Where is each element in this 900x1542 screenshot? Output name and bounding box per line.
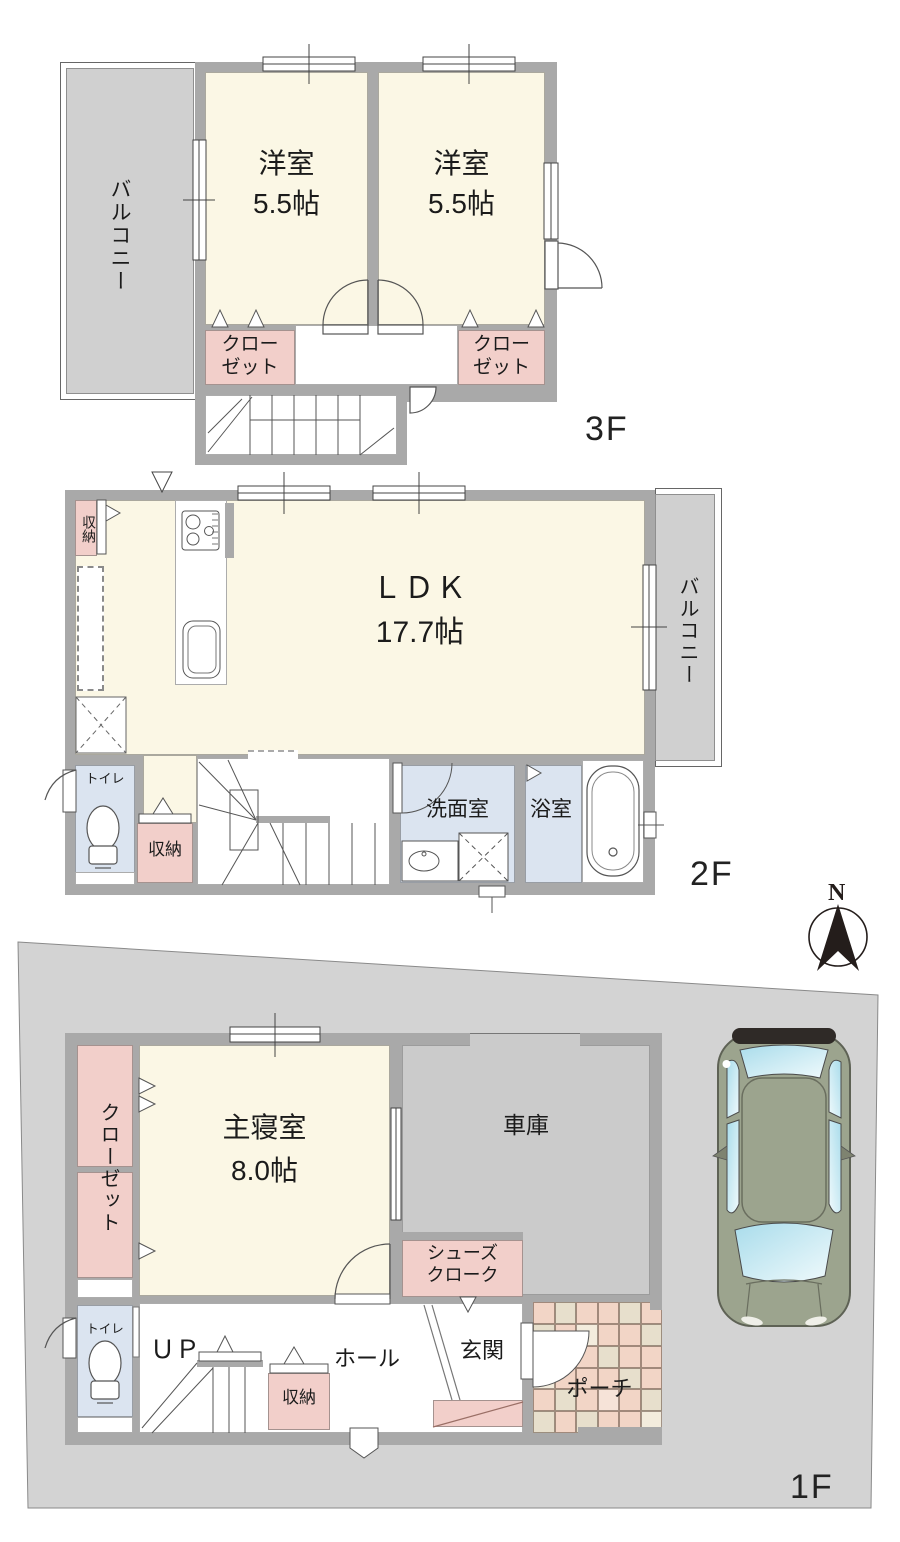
porch-tile [576, 1324, 598, 1346]
porch-tile [555, 1302, 577, 1324]
storage-1f-label: 収納 [268, 1388, 330, 1408]
balcony-2f-label: バルコニー [670, 548, 698, 713]
porch-tile [641, 1346, 663, 1368]
ldk-name-label: ＬＤＫ [300, 572, 540, 607]
balcony-3f-label: バルコニー [101, 148, 131, 323]
room1-size-label: 5.5帖 [205, 188, 368, 220]
bathroom-label: 浴室 [520, 798, 582, 822]
porch-tiles [533, 1302, 662, 1433]
kitchen-wall-stub [225, 503, 234, 558]
entrance-step [433, 1400, 523, 1427]
porch-tile [619, 1302, 641, 1324]
porch-tile [598, 1302, 620, 1324]
north-label: N [828, 880, 845, 907]
porch-tile [533, 1324, 555, 1346]
entrance-label: 玄関 [432, 1338, 532, 1363]
washroom-area [400, 765, 515, 883]
closet-3f-right-label-2: ゼット [458, 357, 545, 379]
closet-3f-right-label-1: クロー [458, 334, 545, 356]
bedroom-size-label: 8.0帖 [139, 1155, 390, 1187]
stairs-up-label: ＵＰ [139, 1336, 211, 1365]
room1-name-label: 洋室 [205, 148, 368, 180]
closet-1f-bottom-strip [77, 1279, 133, 1298]
toilet-2f-step [75, 872, 135, 885]
ldk-passage-area [143, 755, 197, 823]
corridor-3f-area [295, 325, 458, 385]
porch-corner-wall [650, 1302, 662, 1310]
porch-label: ポーチ [542, 1376, 657, 1401]
porch-tile [533, 1411, 555, 1433]
porch-tile [576, 1346, 598, 1368]
porch-tile [533, 1346, 555, 1368]
shoes-closet-top-wall [402, 1232, 523, 1240]
toilet-2f-label: トイレ [75, 772, 135, 787]
closet-1f-label: クローゼット [89, 1060, 119, 1275]
cupboard-space-dashed [77, 566, 104, 691]
floor1-tag: 1F [790, 1468, 834, 1507]
porch-tile [555, 1411, 577, 1433]
washroom-label: 洗面室 [400, 798, 515, 822]
car-illustration [713, 1028, 855, 1327]
bathroom-area [525, 765, 582, 883]
bedroom-name-label: 主寝室 [139, 1112, 390, 1144]
porch-tile [619, 1324, 641, 1346]
storage-2f-top-label: 収納 [77, 504, 97, 554]
stairs-3f-area [205, 395, 397, 455]
shoes-closet-label-1: シューズ [402, 1243, 523, 1264]
porch-tile [598, 1346, 620, 1368]
floor2-tag: 2F [690, 855, 734, 894]
porch-tile [533, 1302, 555, 1324]
hall-label: ホール [312, 1346, 422, 1371]
bathtub-bay [582, 760, 644, 883]
porch-tile [598, 1324, 620, 1346]
toilet-1f-label: トイレ [77, 1322, 133, 1336]
porch-bottom-wall [578, 1427, 662, 1440]
floor-plan-sheet: バルコニー 洋室 5.5帖 洋室 5.5帖 クロー ゼット クロー ゼット 3F… [0, 0, 900, 1542]
garage-door-opening [470, 1033, 580, 1047]
shoes-closet-label-2: クローク [402, 1265, 523, 1286]
toilet-1f-step [77, 1417, 133, 1433]
kitchen-counter [175, 500, 227, 685]
porch-tile [555, 1346, 577, 1368]
ldk-size-label: 17.7帖 [300, 616, 540, 651]
porch-tile [576, 1302, 598, 1324]
closet-3f-left-label-1: クロー [205, 334, 295, 356]
stairs-2f-area [197, 758, 390, 885]
room2-name-label: 洋室 [378, 148, 545, 180]
porch-tile [555, 1324, 577, 1346]
north-compass-icon [809, 904, 867, 971]
storage-2f-bottom-label: 収納 [137, 840, 193, 860]
porch-tile [641, 1324, 663, 1346]
floor3-tag: 3F [585, 410, 629, 449]
garage-label: 車庫 [402, 1112, 650, 1138]
porch-tile [619, 1346, 641, 1368]
closet-3f-left-label-2: ゼット [205, 357, 295, 379]
room2-size-label: 5.5帖 [378, 188, 545, 220]
